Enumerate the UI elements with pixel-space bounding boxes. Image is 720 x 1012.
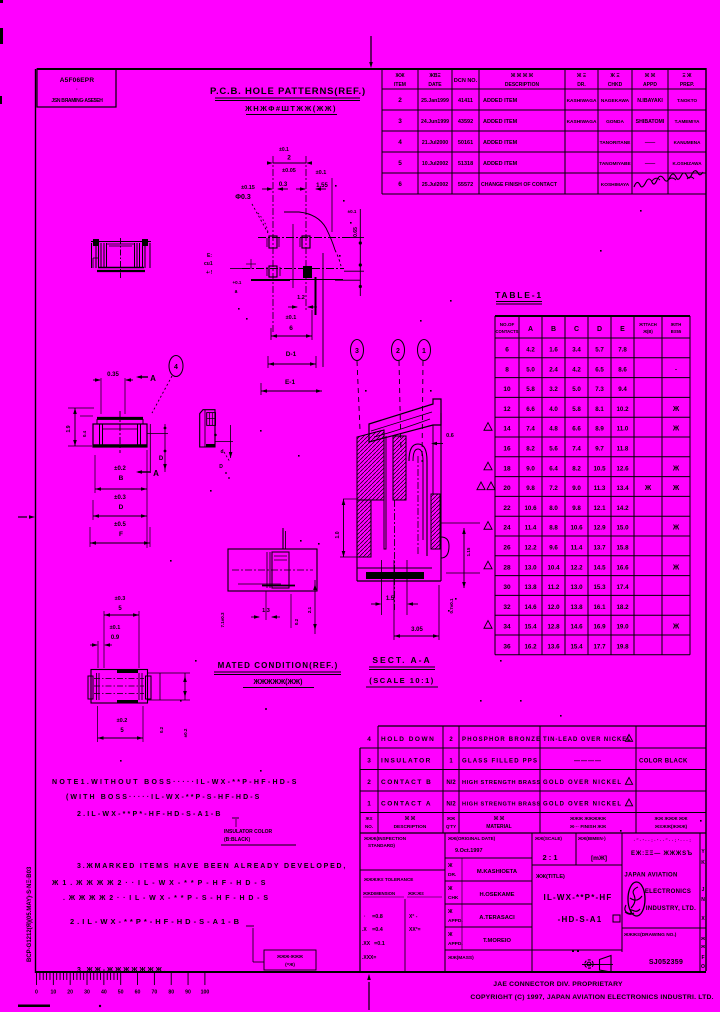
svg-text:IL-WX-**P*-HF: IL-WX-**P*-HF	[544, 893, 613, 902]
svg-text:HOLD DOWN: HOLD DOWN	[381, 736, 435, 743]
svg-text:12.6: 12.6	[616, 465, 629, 472]
svg-text:Ж Ж: Ж Ж	[493, 816, 505, 822]
svg-text:10.2: 10.2	[616, 406, 629, 413]
svg-text:16.1: 16.1	[593, 604, 606, 611]
svg-text:KASHIWAGA: KASHIWAGA	[567, 98, 597, 104]
svg-text:M.KASHIOETA: M.KASHIOETA	[477, 869, 518, 875]
svg-text:11.0: 11.0	[617, 426, 629, 433]
svg-text:3.4: 3.4	[572, 347, 581, 354]
svg-text:Ж: Ж	[672, 624, 680, 631]
svg-text:ΒСΡ-Ԍ1212(Я)(05.ΜΑΥ)·Ѕ·ΝΞ·Β03: ΒСΡ-Ԍ1212(Я)(05.ΜΑΥ)·Ѕ·ΝΞ·Β03	[27, 866, 33, 962]
svg-text:Ж··· FINISH ЖЖ: Ж··· FINISH ЖЖ	[569, 824, 607, 830]
svg-text:A: A	[150, 374, 156, 383]
svg-text:SECT. A-A: SECT. A-A	[372, 655, 431, 665]
svg-text:60: 60	[135, 990, 141, 996]
svg-text:GOLD OVER NICKEL: GOLD OVER NICKEL	[543, 802, 622, 808]
svg-text:5.6: 5.6	[549, 446, 558, 453]
svg-text:11.2: 11.2	[548, 584, 560, 591]
svg-text:19.0: 19.0	[616, 624, 629, 631]
svg-text:=0.8: =0.8	[372, 914, 383, 920]
svg-text:STANDARD): STANDARD)	[368, 843, 395, 848]
svg-text:——: ——	[645, 140, 656, 146]
svg-text:25.Jan1999: 25.Jan1999	[421, 98, 449, 104]
svg-text:Ж(Β): Ж(Β)	[642, 329, 653, 334]
svg-text:5.8: 5.8	[526, 386, 535, 393]
svg-text:cu1: cu1	[204, 261, 213, 267]
svg-text:51318: 51318	[458, 161, 473, 167]
svg-text:.XXX=: .XXX=	[362, 955, 376, 961]
svg-text:6.6: 6.6	[526, 406, 535, 413]
svg-text:6: 6	[505, 347, 509, 354]
svg-text:.ЖЖЖЖ2··IL-WX-**P-S-HF-HD-S: .ЖЖЖЖ2··IL-WX-**P-S-HF-HD-S	[63, 895, 272, 902]
svg-text:6.4: 6.4	[549, 465, 558, 472]
svg-text:JAPAN AVIATION: JAPAN AVIATION	[624, 873, 677, 879]
svg-text:APPD.: APPD.	[448, 941, 463, 947]
svg-text:GONDA: GONDA	[606, 119, 624, 125]
svg-text:1.5: 1.5	[386, 596, 395, 602]
svg-text:KANUMENA: KANUMENA	[674, 140, 701, 145]
svg-text:XX°=: XX°=	[409, 927, 421, 933]
svg-text:·˜·'··:·'··˜··:'···:: ·˜·'··:·'··˜··:'···:	[634, 838, 693, 843]
svg-text:F: F	[119, 531, 123, 538]
svg-text:0.2: 0.2	[294, 618, 299, 625]
svg-text:ЖЖ: ЖЖ	[446, 816, 456, 821]
svg-text:10: 10	[503, 386, 511, 393]
svg-text:17.7: 17.7	[593, 644, 606, 651]
svg-text:ЖЖ(SCALE): ЖЖ(SCALE)	[534, 836, 562, 841]
svg-text:40: 40	[101, 990, 107, 996]
svg-text:4: 4	[174, 364, 178, 371]
svg-text:INSULATOR COLOR: INSULATOR COLOR	[224, 829, 273, 835]
svg-text:NOTE1.WITHOUT BOSS·····IL-WX-*: NOTE1.WITHOUT BOSS·····IL-WX-**P-HF-HD-S	[52, 779, 299, 786]
svg-text:INSULATOR: INSULATOR	[381, 758, 432, 765]
svg-text:T.MOREIO: T.MOREIO	[483, 938, 512, 944]
svg-text:O: O	[701, 964, 705, 970]
svg-text:P.C.B. HOLE PATTERNS(REF.): P.C.B. HOLE PATTERNS(REF.)	[210, 86, 366, 97]
svg-text:ЖЖЖ(INSPECTION: ЖЖЖ(INSPECTION	[363, 836, 407, 841]
svg-text:2 : 1: 2 : 1	[542, 853, 557, 862]
svg-text:5.7: 5.7	[595, 347, 604, 354]
svg-text:Ξ Ж: Ξ Ж	[682, 73, 692, 79]
svg-text:Ж: Ж	[447, 863, 453, 869]
svg-text:E: E	[620, 326, 625, 333]
svg-text:ITEM: ITEM	[394, 82, 406, 88]
svg-text:+·!: +·!	[206, 270, 213, 276]
svg-text:ΒΞ55: ΒΞ55	[671, 329, 682, 334]
svg-text:±0.15: ±0.15	[241, 185, 255, 191]
svg-text:50: 50	[118, 990, 124, 996]
svg-text:ЖНЖΦ#ШΤЖЖ(ЖЖ): ЖНЖΦ#ШΤЖЖ(ЖЖ)	[244, 104, 337, 113]
svg-text:0: 0	[35, 990, 38, 996]
svg-text:21.Jul2000: 21.Jul2000	[422, 140, 448, 146]
svg-text:9.8: 9.8	[572, 505, 581, 512]
svg-text:ELECTRONICS: ELECTRONICS	[645, 889, 691, 895]
svg-text:25.Jul2002: 25.Jul2002	[422, 182, 448, 188]
svg-text:a: a	[235, 289, 238, 295]
svg-text:N.IBAYAKI: N.IBAYAKI	[637, 98, 663, 104]
svg-text:50161: 50161	[458, 140, 473, 146]
svg-text:3.ЖЖ-ЖЖЖЖЖЖЖ.: 3.ЖЖ-ЖЖЖЖЖЖЖ.	[77, 967, 167, 974]
svg-text:7.3: 7.3	[595, 386, 604, 393]
svg-text:HIGH STRENGTH BRASS: HIGH STRENGTH BRASS	[462, 802, 541, 808]
svg-text:16.6: 16.6	[616, 564, 629, 571]
svg-text:TABLE-1: TABLE-1	[495, 290, 543, 300]
svg-text:±0.5: ±0.5	[114, 522, 126, 528]
svg-text:0.35: 0.35	[107, 372, 119, 378]
svg-text:A: A	[528, 326, 533, 333]
svg-text:ADDED ITEM: ADDED ITEM	[483, 119, 518, 125]
svg-text:8.9: 8.9	[595, 426, 604, 433]
svg-text:ЖЖ(TITLE): ЖЖ(TITLE)	[535, 874, 565, 880]
svg-text:DR.: DR.	[448, 872, 456, 878]
svg-text:10: 10	[50, 990, 56, 996]
svg-text:ЖΞ: ЖΞ	[365, 816, 373, 821]
svg-text:10.6: 10.6	[570, 525, 583, 532]
svg-text:10.4: 10.4	[547, 564, 560, 571]
svg-text:(WITH BOSS·····IL-WX-**P-S-HF-: (WITH BOSS·····IL-WX-**P-S-HF-HD-S	[66, 794, 261, 801]
svg-text:3.ЖMARKED ITEMS HAVE BEEN ALRE: 3.ЖMARKED ITEMS HAVE BEEN ALREADY DEVELO…	[77, 863, 347, 870]
svg-text:19.8: 19.8	[616, 644, 629, 651]
svg-text:MATERIAL: MATERIAL	[486, 824, 511, 830]
svg-text:DATE: DATE	[428, 82, 442, 88]
svg-text:CHANGE FINISH OF CONTACT: CHANGE FINISH OF CONTACT	[481, 182, 558, 188]
svg-text:NO.: NO.	[365, 824, 373, 829]
svg-text:14.2: 14.2	[616, 505, 629, 512]
svg-text:±0.3: ±0.3	[115, 596, 126, 602]
svg-text:100: 100	[201, 990, 210, 996]
svg-text:KOSHIMAYA: KOSHIMAYA	[601, 182, 630, 188]
svg-text:0.6: 0.6	[446, 433, 454, 439]
svg-text:X° -: X° -	[409, 914, 418, 920]
svg-text:12.9: 12.9	[593, 525, 606, 532]
svg-text:ЖЖ: ЖЖ	[394, 73, 405, 79]
svg-text:0.65: 0.65	[353, 227, 359, 237]
svg-text:4.2: 4.2	[526, 347, 535, 354]
svg-text:7.8: 7.8	[618, 347, 627, 354]
svg-text:15.8: 15.8	[616, 545, 629, 552]
svg-text:N: N	[701, 897, 705, 903]
svg-text:20: 20	[67, 990, 73, 996]
svg-text:11.4: 11.4	[571, 545, 583, 552]
svg-text:14.6: 14.6	[570, 624, 583, 631]
svg-text:K: K	[701, 860, 705, 866]
svg-text:24.Jun1999: 24.Jun1999	[421, 119, 449, 125]
svg-text:9.Oct.1997: 9.Oct.1997	[455, 848, 483, 854]
svg-text:T.AMEMIYA: T.AMEMIYA	[675, 119, 701, 124]
svg-text:ЈЅΝ ΒЯΑΜΙΝԌ·ΑЅΕ5ΕΗ: ЈЅΝ ΒЯΑΜΙΝԌ·ΑЅΕ5ΕΗ	[51, 98, 103, 104]
svg-text:1: 1	[367, 801, 371, 808]
svg-text:D: D	[597, 326, 602, 333]
svg-text:13.7: 13.7	[593, 545, 606, 552]
svg-text:SJ052359: SJ052359	[649, 959, 683, 966]
svg-text:4: 4	[628, 739, 630, 743]
svg-text:±0.3: ±0.3	[114, 495, 126, 501]
svg-text:8.2: 8.2	[572, 465, 581, 472]
svg-text:DCN NO.: DCN NO.	[454, 78, 478, 84]
svg-text:ЖЖ:ЖΞ: ЖЖ:ЖΞ	[407, 891, 424, 896]
svg-text:ЖЖЖЖΞ TOLERANCE: ЖЖЖЖΞ TOLERANCE	[363, 877, 413, 882]
svg-text:Ж Ξ: Ж Ξ	[576, 73, 587, 79]
svg-text:80: 80	[168, 990, 174, 996]
svg-text:=0.4: =0.4	[372, 927, 384, 933]
svg-text:D-1: D-1	[286, 351, 297, 358]
svg-text:Ж: Ж	[672, 564, 680, 571]
svg-text:4: 4	[367, 736, 371, 743]
svg-text:ΕЖ:ΞΞ— ЖЖЖЅЪ: ΕЖ:ΞΞ— ЖЖЖЅЪ	[631, 851, 693, 857]
svg-text:43592: 43592	[458, 119, 473, 125]
svg-text:14.5: 14.5	[593, 564, 606, 571]
svg-text:16: 16	[503, 446, 511, 453]
svg-text:ЖΤΤΑСΗ: ЖΤΤΑСΗ	[638, 322, 657, 327]
svg-text:14: 14	[503, 426, 511, 433]
svg-text:JAE CONNECTOR DIV. PROPRIETARY: JAE CONNECTOR DIV. PROPRIETARY	[493, 981, 623, 988]
svg-text:Ж Ж: Ж Ж	[644, 73, 656, 79]
svg-text:6.5: 6.5	[595, 366, 604, 373]
svg-text:GOLD OVER NICKEL: GOLD OVER NICKEL	[543, 780, 622, 786]
svg-text:18.2: 18.2	[616, 604, 629, 611]
svg-text:28: 28	[503, 564, 511, 571]
svg-text:PHOSPHOR BRONZE: PHOSPHOR BRONZE	[462, 737, 541, 743]
svg-text:D: D	[219, 464, 223, 470]
svg-text:3: 3	[398, 118, 402, 125]
svg-text:12.2: 12.2	[524, 545, 537, 552]
svg-text:±0.1: ±0.1	[286, 315, 297, 321]
svg-text:9.0: 9.0	[526, 465, 535, 472]
svg-text:±0.1: ±0.1	[348, 209, 357, 214]
svg-text:Q'TY: Q'TY	[446, 824, 456, 829]
svg-text:——: ——	[645, 161, 656, 167]
svg-text:90: 90	[185, 990, 191, 996]
svg-text:0.2: 0.2	[159, 726, 164, 733]
svg-text:9.8: 9.8	[526, 485, 535, 492]
svg-text:8.8: 8.8	[549, 525, 558, 532]
svg-text:Ж: Ж	[672, 485, 680, 492]
svg-text:COPYRIGHT (C) 1997, JAPAN AVIA: COPYRIGHT (C) 1997, JAPAN AVIATION ELECT…	[470, 994, 713, 1001]
svg-text:12.0: 12.0	[547, 604, 560, 611]
svg-text:ЖЖ(ΒΙΜЕΝ·): ЖЖ(ΒΙΜЕΝ·)	[577, 836, 606, 841]
svg-text:CONTACTS: CONTACTS	[496, 329, 519, 334]
svg-text:CONTACT B: CONTACT B	[381, 779, 432, 786]
svg-text:5.0: 5.0	[526, 366, 535, 373]
svg-text:17.4: 17.4	[616, 584, 629, 591]
svg-text:ЖΞЖЖ(ЖЖЖ): ЖΞЖЖ(ЖЖЖ)	[654, 824, 688, 830]
svg-text:15.4: 15.4	[570, 644, 583, 651]
svg-text:0.9: 0.9	[111, 635, 120, 641]
svg-text:[mЖ]: [mЖ]	[591, 855, 607, 862]
svg-text:±0.1: ±0.1	[316, 170, 327, 176]
svg-text:55572: 55572	[458, 182, 473, 188]
svg-text:13.0: 13.0	[570, 584, 583, 591]
svg-text:4.2: 4.2	[572, 366, 581, 373]
svg-text:13.6: 13.6	[547, 644, 560, 651]
svg-text:7.1±0.3: 7.1±0.3	[220, 612, 225, 627]
svg-text:5: 5	[398, 160, 402, 167]
svg-text:Ε:: Ε:	[207, 253, 212, 259]
svg-text:A: A	[153, 469, 159, 478]
svg-text:12.1: 12.1	[593, 505, 606, 512]
svg-text:±0.2: ±0.2	[114, 466, 126, 472]
svg-text:9.4: 9.4	[618, 386, 627, 393]
svg-text:6.6: 6.6	[572, 426, 581, 433]
svg-text:Ж Ж: Ж Ж	[404, 816, 416, 822]
svg-text:T.NOKTO: T.NOKTO	[677, 98, 698, 103]
svg-text:11.4: 11.4	[525, 525, 537, 532]
svg-text:±0.2: ±0.2	[117, 718, 128, 724]
svg-text:2: 2	[396, 348, 400, 355]
svg-text:4.0: 4.0	[549, 406, 558, 413]
svg-text:9.6: 9.6	[549, 545, 558, 552]
svg-text:E-1: E-1	[285, 379, 296, 386]
svg-text:5.0: 5.0	[572, 386, 581, 393]
svg-text:13.4: 13.4	[616, 485, 629, 492]
svg-text:-HD-S-A1: -HD-S-A1	[558, 915, 603, 924]
svg-text:Ж: Ж	[447, 909, 453, 915]
svg-text:J: J	[702, 887, 705, 893]
svg-text:d: d	[220, 449, 223, 455]
svg-text:APPD.: APPD.	[448, 918, 463, 924]
svg-text:ЖЖDIMENSION: ЖЖDIMENSION	[362, 891, 395, 896]
svg-text:12.8: 12.8	[547, 624, 560, 631]
svg-text:11.8: 11.8	[617, 446, 629, 453]
svg-text:N/2: N/2	[446, 780, 456, 786]
svg-text:8.6: 8.6	[618, 366, 627, 373]
svg-text:1.15: 1.15	[466, 547, 471, 556]
svg-text:Ж Ж Ж Ж: Ж Ж Ж Ж	[510, 73, 534, 79]
svg-text:10.5: 10.5	[593, 465, 606, 472]
svg-text:2.1: 2.1	[307, 606, 312, 613]
svg-text:4: 4	[398, 139, 402, 146]
svg-text:41411: 41411	[458, 98, 473, 104]
svg-text:ЖЖЖЖЖ(ЖЖ): ЖЖЖЖЖ(ЖЖ)	[253, 679, 303, 686]
svg-text:(B:BLACK): (B:BLACK)	[224, 837, 250, 843]
svg-text:ЖЖЖΞ(DRAWING NO.): ЖЖЖΞ(DRAWING NO.)	[623, 932, 677, 938]
svg-text:22: 22	[503, 505, 511, 512]
svg-text:Ж: Ж	[672, 465, 680, 472]
svg-text:3: 3	[355, 348, 359, 355]
svg-text:TANOMIYABE: TANOMIYABE	[599, 161, 631, 167]
svg-text:2.4: 2.4	[549, 366, 558, 373]
svg-text:1: 1	[422, 348, 426, 355]
svg-text:Ж: Ж	[447, 932, 453, 938]
svg-text:ЖЖЖ-ЖЖЖ: ЖЖЖ-ЖЖЖ	[276, 954, 304, 959]
svg-text:CHK: CHK	[448, 895, 459, 901]
svg-text:Ж: Ж	[672, 406, 680, 413]
svg-text:6: 6	[289, 325, 293, 332]
svg-text:PREP.: PREP.	[680, 82, 695, 88]
svg-text:18: 18	[503, 465, 511, 472]
svg-text:NAGEKAWA: NAGEKAWA	[601, 98, 630, 104]
svg-text:TIN-LEAD OVER NICKEL: TIN-LEAD OVER NICKEL	[543, 737, 632, 743]
svg-text:10.6: 10.6	[524, 505, 537, 512]
svg-text:(SCALE 10:1): (SCALE 10:1)	[369, 676, 435, 685]
svg-text:15.3: 15.3	[593, 584, 606, 591]
svg-text:13.0: 13.0	[524, 564, 537, 571]
svg-text:12.2: 12.2	[570, 564, 583, 571]
svg-text:B: B	[119, 475, 124, 482]
svg-text:70: 70	[151, 990, 157, 996]
svg-text:10.Jul2002: 10.Jul2002	[422, 161, 448, 167]
svg-text:ЖЖ(ORIGINAL DATE): ЖЖ(ORIGINAL DATE)	[447, 836, 496, 841]
svg-text:CONTACT A: CONTACT A	[381, 801, 432, 808]
svg-text:9.7: 9.7	[595, 446, 604, 453]
svg-text:INDUSTRY, LTD.: INDUSTRY, LTD.	[646, 906, 696, 912]
svg-text:MATED CONDITION(REF.): MATED CONDITION(REF.)	[218, 661, 339, 670]
svg-text:A5F06EPR: A5F06EPR	[60, 77, 95, 84]
svg-text:36: 36	[503, 644, 511, 651]
svg-text:C: C	[574, 326, 579, 333]
svg-text:11.3: 11.3	[594, 485, 606, 492]
svg-text:K.OSHIZAWA: K.OSHIZAWA	[672, 161, 702, 166]
svg-text:1.6: 1.6	[549, 347, 558, 354]
svg-text:-: -	[675, 367, 677, 373]
svg-text:±0.2: ±0.2	[183, 728, 188, 737]
svg-text:APPD: APPD	[643, 82, 657, 88]
svg-text:+0.1: +0.1	[233, 280, 242, 285]
svg-text:26: 26	[503, 545, 511, 552]
svg-text:7.4: 7.4	[526, 426, 535, 433]
svg-text:HIGH STRENGTH BRASS: HIGH STRENGTH BRASS	[462, 780, 541, 786]
svg-text:7.2: 7.2	[549, 485, 558, 492]
svg-text:6: 6	[398, 181, 402, 188]
svg-text:D: D	[159, 456, 164, 462]
svg-text:COLOR BLACK: COLOR BLACK	[639, 759, 688, 765]
svg-text:Ж: Ж	[672, 525, 680, 532]
svg-text:2: 2	[367, 779, 371, 786]
svg-text:Ж1.ЖЖЖЖ2··IL-WX-**P-HF-HD-S: Ж1.ЖЖЖЖ2··IL-WX-**P-HF-HD-S	[51, 880, 269, 887]
svg-text:14.6: 14.6	[524, 604, 537, 611]
svg-text:3.2: 3.2	[549, 386, 558, 393]
svg-text:20: 20	[503, 485, 511, 492]
svg-text:34: 34	[503, 624, 511, 631]
svg-text:8: 8	[505, 366, 509, 373]
svg-text:Ж: Ж	[672, 426, 680, 433]
svg-text:0.4: 0.4	[82, 430, 87, 437]
svg-text:DR.: DR.	[577, 82, 586, 88]
svg-text:30: 30	[84, 990, 90, 996]
svg-text:ADDED ITEM: ADDED ITEM	[483, 98, 518, 104]
svg-text:8.0: 8.0	[549, 505, 558, 512]
svg-text:ЖЖ(MASS): ЖЖ(MASS)	[447, 955, 474, 961]
svg-text:16.2: 16.2	[524, 644, 537, 651]
svg-text:32: 32	[503, 604, 511, 611]
svg-text:1.9: 1.9	[66, 425, 72, 432]
svg-text:12: 12	[503, 406, 511, 413]
svg-text:1.2: 1.2	[297, 295, 305, 301]
svg-text:F: F	[701, 955, 704, 961]
svg-text:8.1: 8.1	[595, 406, 604, 413]
svg-text:7.4: 7.4	[572, 446, 581, 453]
svg-text:3: 3	[367, 758, 371, 765]
svg-text:13.8: 13.8	[524, 584, 537, 591]
svg-text:0.7±0.1: 0.7±0.1	[449, 598, 454, 613]
svg-text:30: 30	[503, 584, 511, 591]
svg-text:Ж: Ж	[644, 485, 652, 492]
svg-text:ADDED ITEM: ADDED ITEM	[483, 140, 518, 146]
svg-text:1.0: 1.0	[335, 531, 341, 538]
svg-text:9.0: 9.0	[572, 485, 581, 492]
svg-text:Ж Ξ: Ж Ξ	[609, 73, 620, 79]
svg-text:2.IL-WX-**P*-HF-HD-S-A1-B: 2.IL-WX-**P*-HF-HD-S-A1-B	[77, 811, 223, 818]
svg-text:B: B	[551, 326, 556, 333]
svg-text:H.OSEKAME: H.OSEKAME	[479, 892, 514, 898]
svg-text:TANORITANE: TANORITANE	[600, 140, 632, 146]
svg-text:13.8: 13.8	[570, 604, 583, 611]
svg-text:D: D	[119, 504, 124, 511]
svg-text:GLASS FILLED PPS: GLASS FILLED PPS	[462, 759, 538, 765]
svg-text:2: 2	[398, 97, 402, 104]
svg-text:±0.1: ±0.1	[110, 625, 121, 631]
svg-text:±0.05: ±0.05	[282, 168, 296, 174]
